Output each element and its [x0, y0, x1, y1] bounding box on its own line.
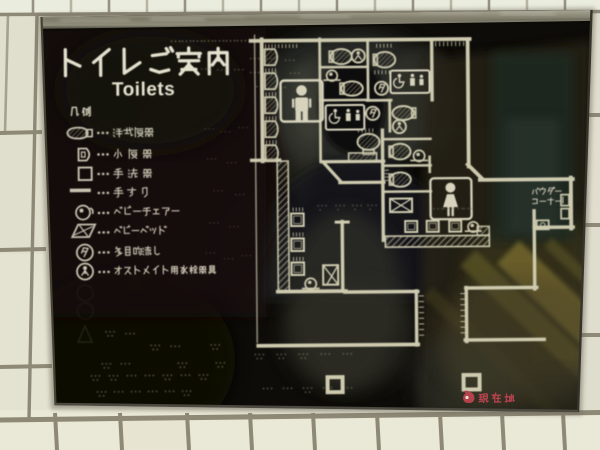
svg-text:Toilets: Toilets: [112, 79, 176, 101]
